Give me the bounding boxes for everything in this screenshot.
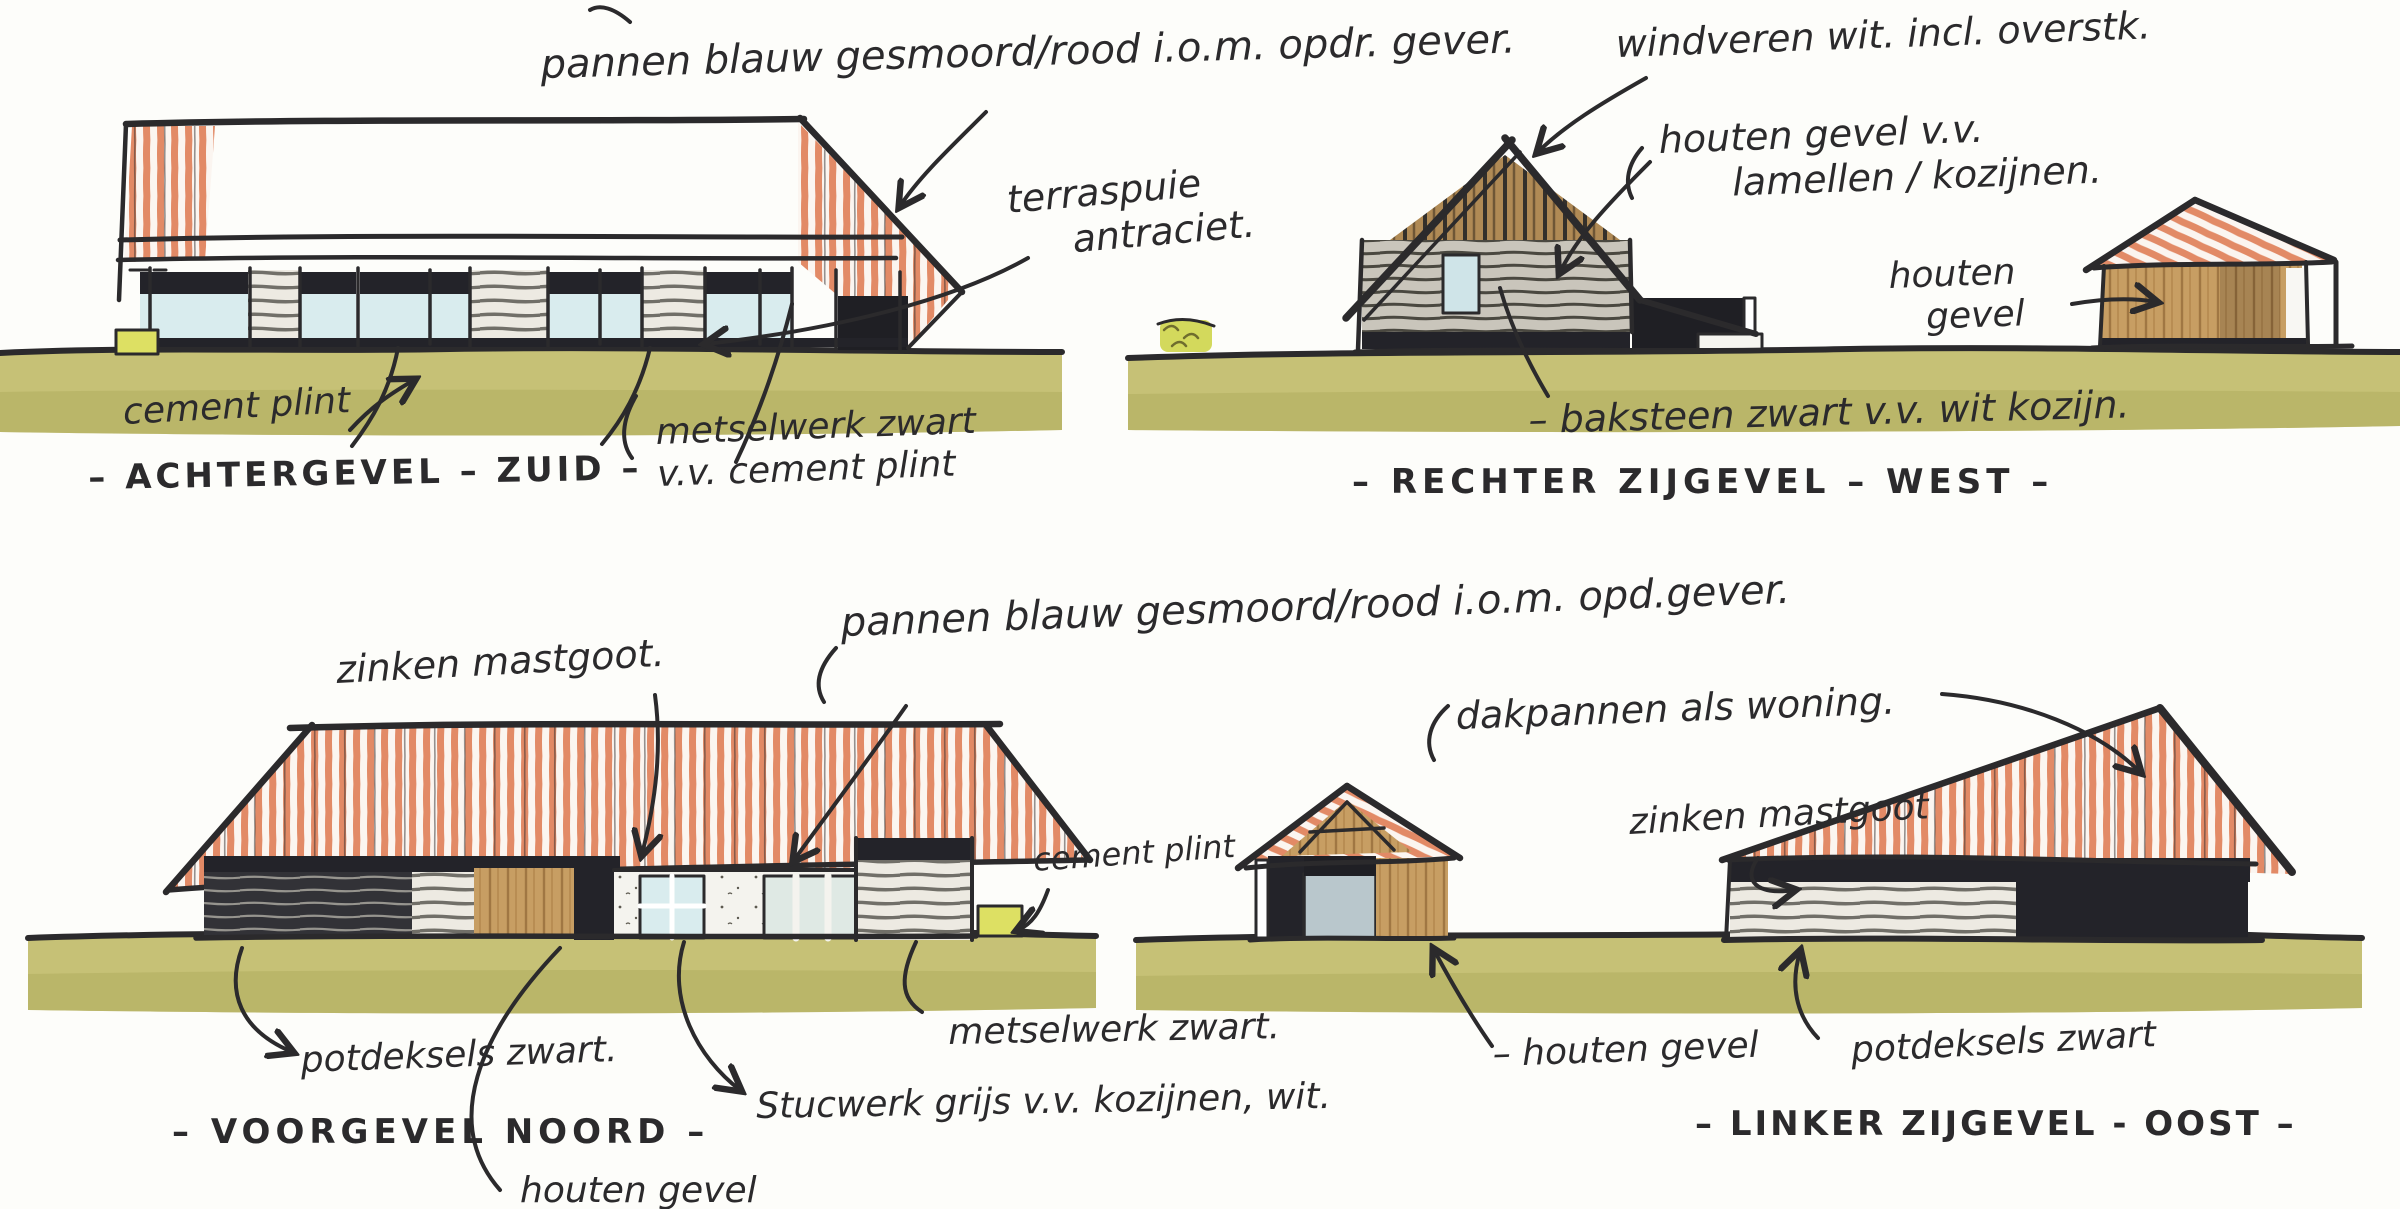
wing-clapboard <box>856 860 972 940</box>
bush <box>1158 319 1214 352</box>
note-masonry-south: metselwerk zwart v.v. cement plint <box>655 401 978 497</box>
timber-door <box>474 868 574 938</box>
ground-band-bottom-left <box>28 930 1096 1013</box>
note-timber-gable: houten gevel v.v. lamellen / kozijnen. <box>1658 103 2103 208</box>
dark-wall <box>2016 858 2248 942</box>
hut-post <box>1256 860 1268 938</box>
hut-wood-wall <box>1376 858 1448 938</box>
dark-clapboard <box>204 872 412 938</box>
achtergevel-zuid-drawing <box>116 118 962 354</box>
note-timber-door: houten gevel <box>520 1170 757 1209</box>
title-linker-zijgevel-oost: – LINKER ZIJGEVEL - OOST – <box>1695 1104 2297 1144</box>
hut-window <box>1304 874 1376 938</box>
accent-box <box>116 330 158 354</box>
title-rechter-zijgevel-west: – RECHTER ZIJGEVEL – WEST – <box>1352 462 2053 502</box>
window2 <box>764 876 856 938</box>
note-masonry-north: metselwerk zwart. <box>948 1006 1280 1054</box>
note-barn-line1: houten <box>1888 252 2016 297</box>
voorgevel-noord-drawing <box>166 724 1090 940</box>
sketch-sheet: pannen blauw gesmoord/rood i.o.m. opdr. … <box>0 0 2400 1209</box>
garden-hut <box>1238 786 1460 940</box>
barn-roof <box>2092 204 2338 266</box>
accent-box <box>978 906 1022 936</box>
title-voorgevel-noord: – VOORGEVEL NOORD – <box>172 1112 709 1152</box>
plinth <box>1362 332 1630 349</box>
window <box>1443 255 1479 313</box>
note-timber-barn: houten gevel <box>1888 251 2025 341</box>
note-barn-line2: gevel <box>1925 294 2025 340</box>
small-barn <box>2086 200 2352 348</box>
